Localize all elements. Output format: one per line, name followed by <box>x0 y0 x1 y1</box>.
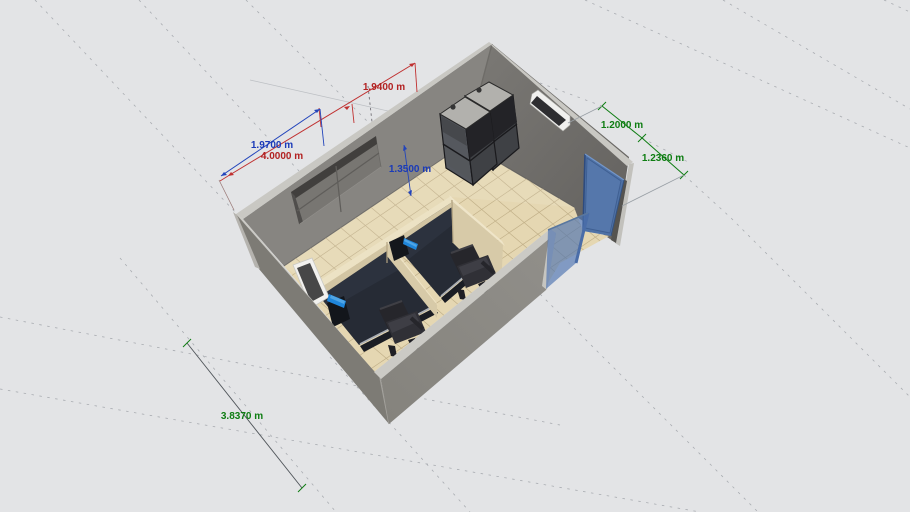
svg-text:3.8370 m: 3.8370 m <box>221 411 263 422</box>
svg-text:4.0000 m: 4.0000 m <box>261 151 303 162</box>
svg-text:1.9700 m: 1.9700 m <box>251 140 293 151</box>
svg-text:1.2360 m: 1.2360 m <box>642 153 684 164</box>
svg-text:1.2000 m: 1.2000 m <box>601 120 643 131</box>
svg-text:1.9400 m: 1.9400 m <box>363 82 405 93</box>
svg-text:1.3500 m: 1.3500 m <box>389 164 431 175</box>
